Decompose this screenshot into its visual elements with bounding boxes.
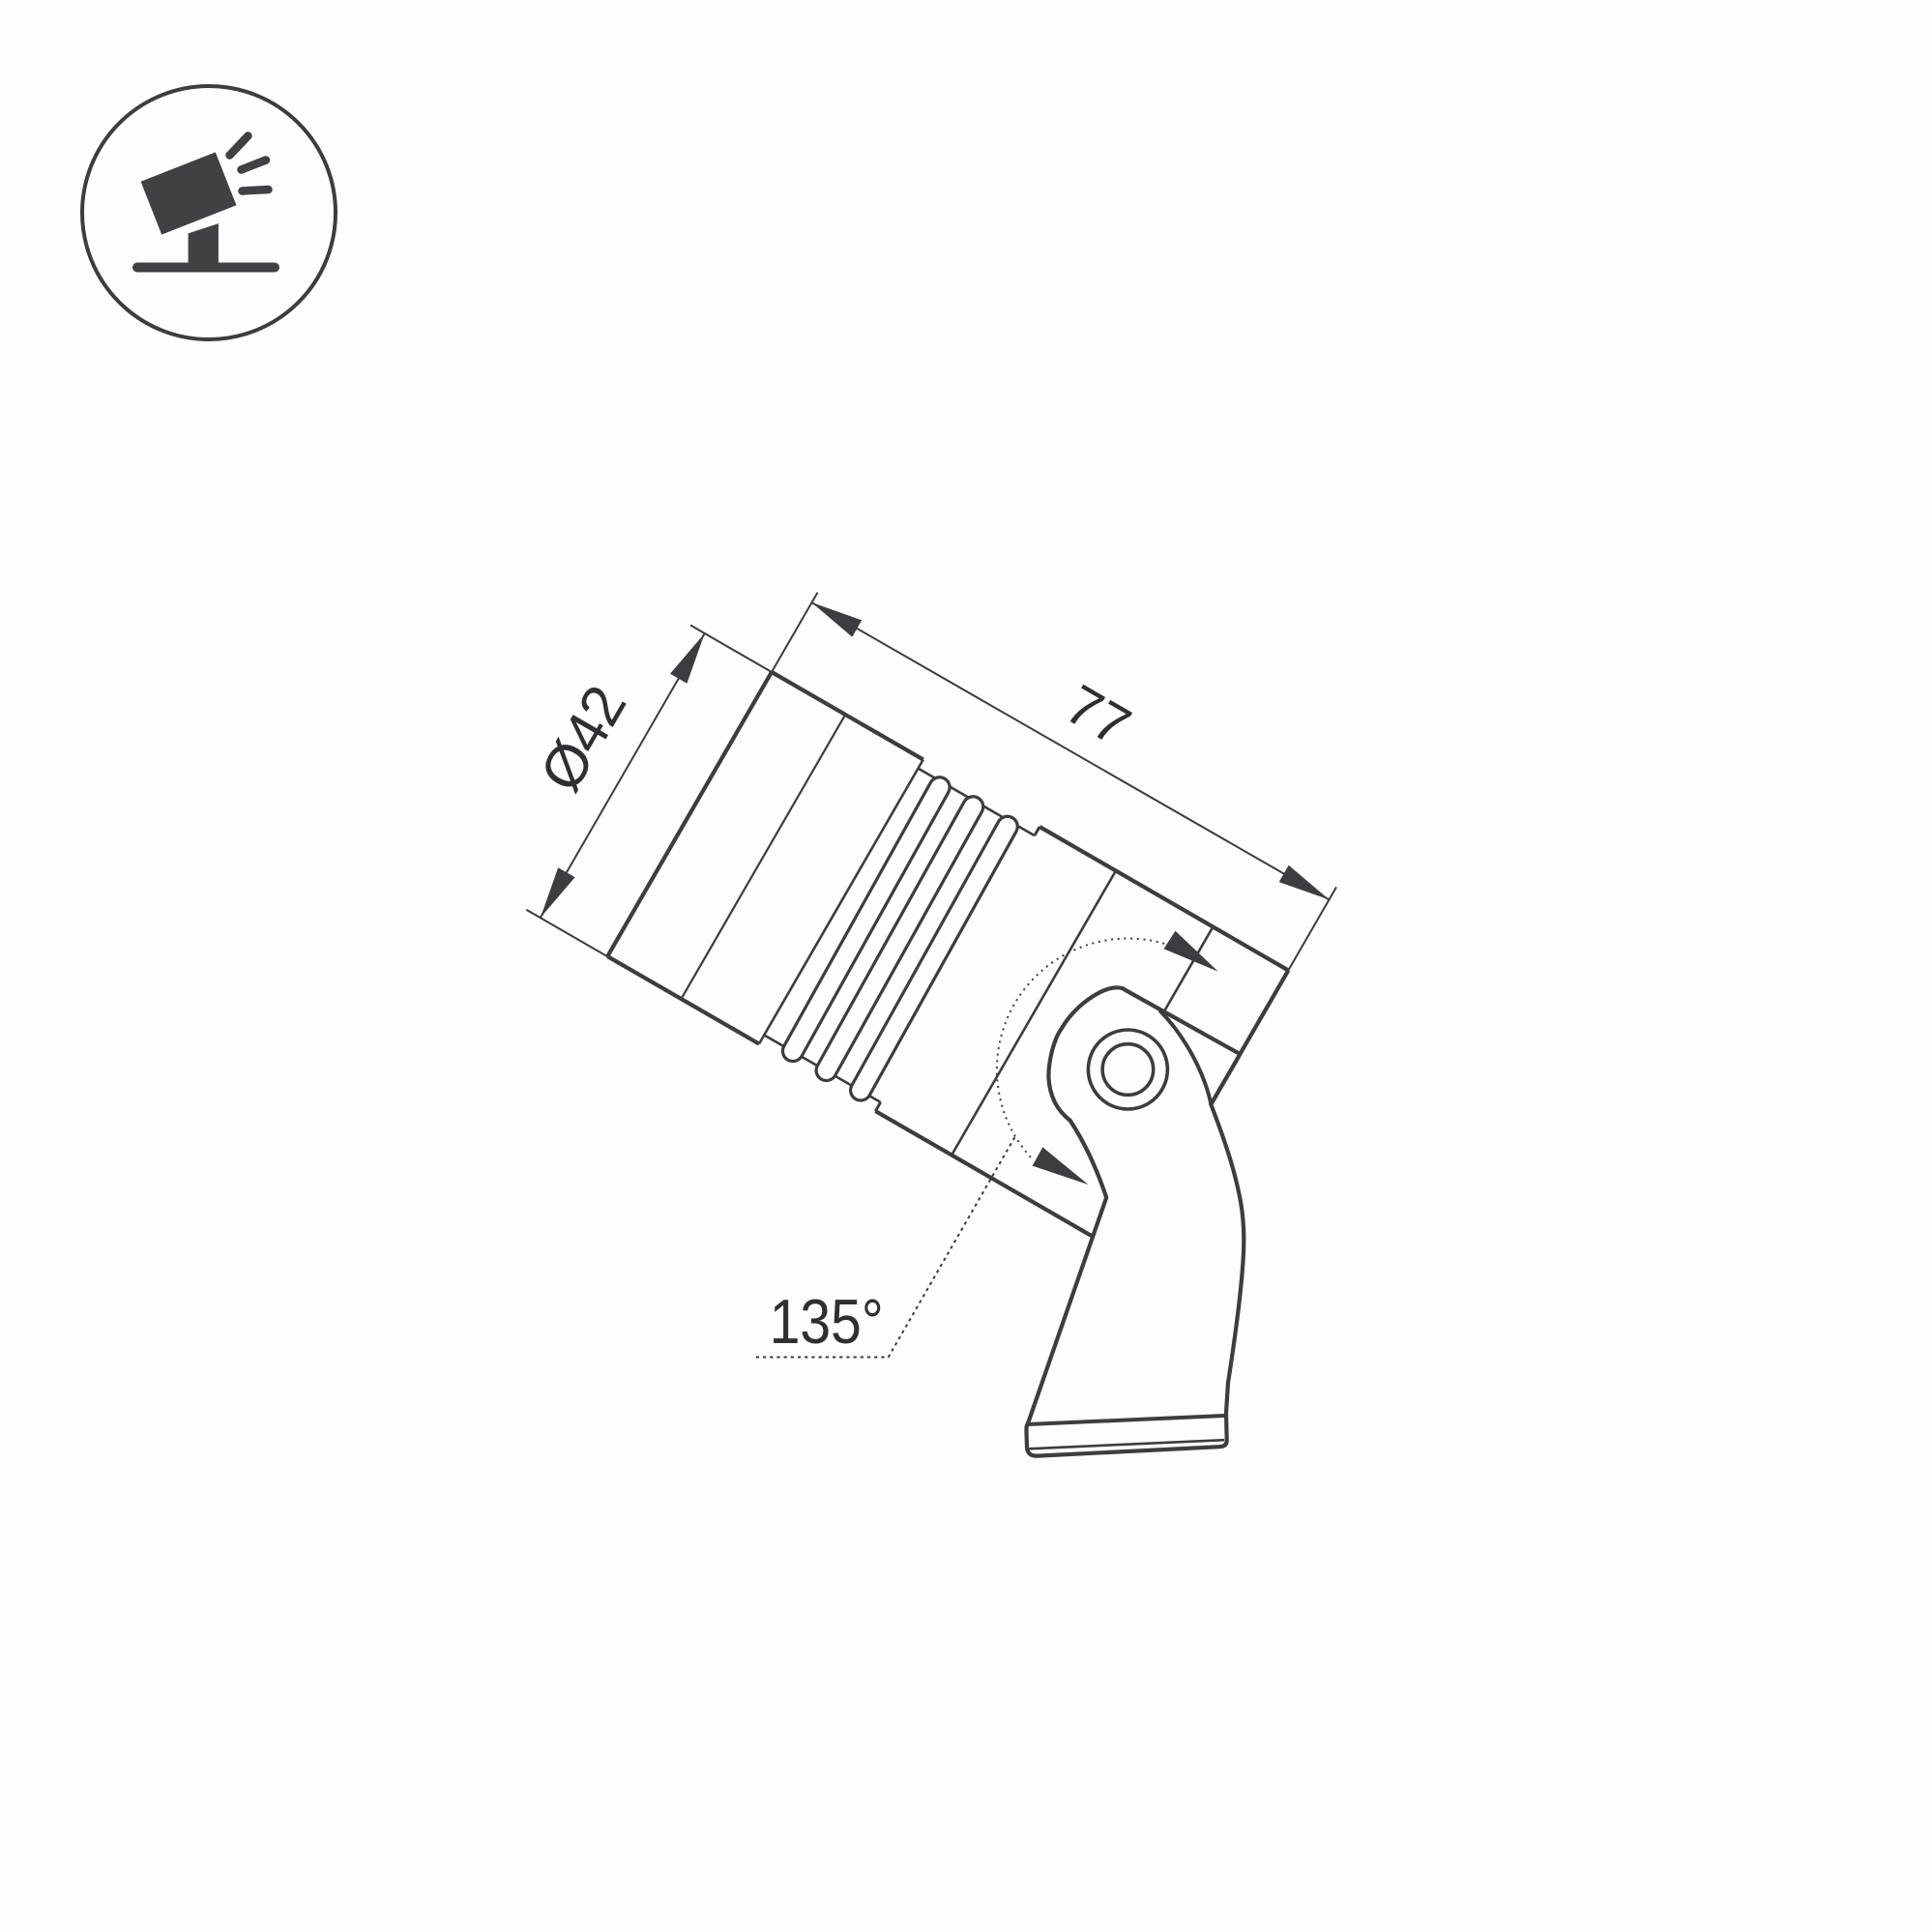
svg-text:135°: 135° xyxy=(770,1286,884,1357)
